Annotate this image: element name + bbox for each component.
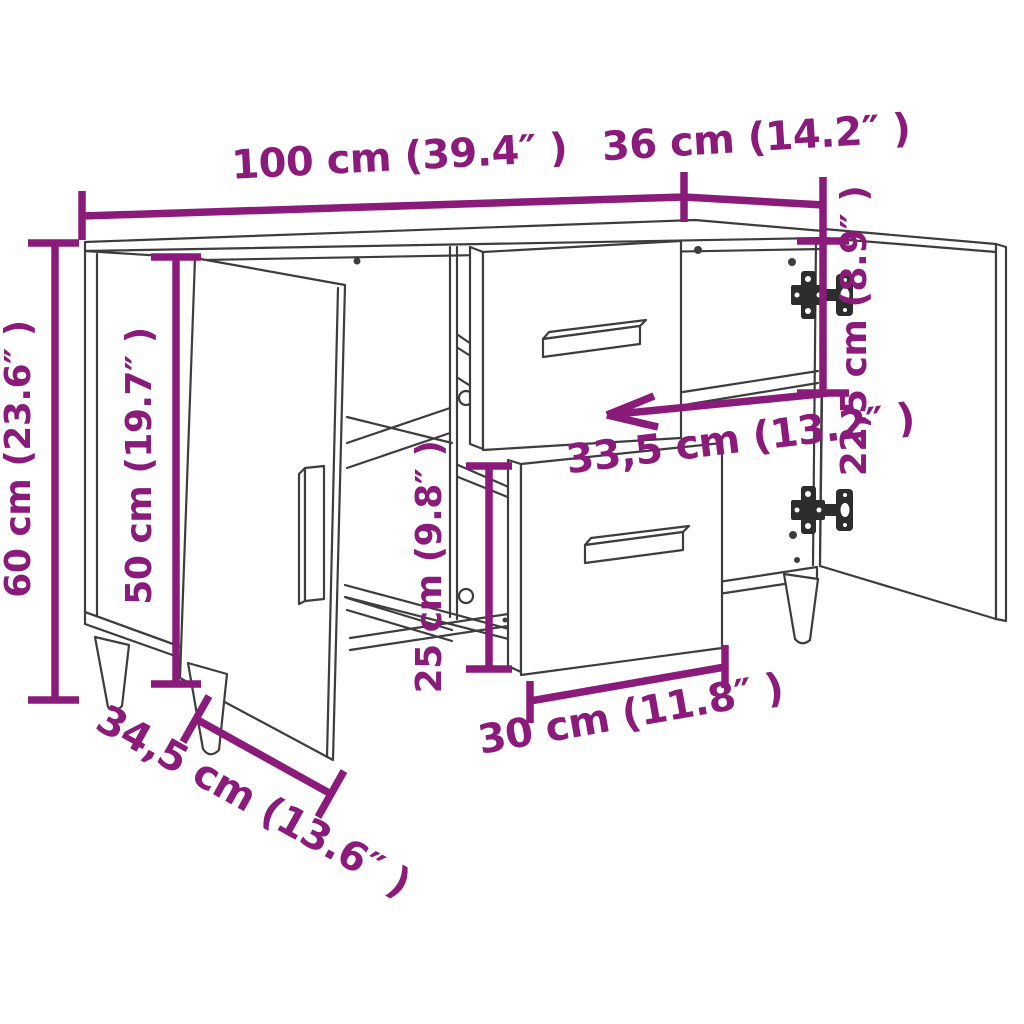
bottom-drawer-side — [508, 460, 521, 672]
dimension-label-drawer-width: 30 cm (11.8″ ) — [475, 665, 787, 764]
back-right-leg — [784, 574, 818, 643]
drawer-roller — [459, 589, 473, 603]
back-panel-screw — [694, 246, 702, 254]
back-panel-screw — [788, 258, 796, 266]
dimension-door-diagonal-width: 34,5 cm (13.6″ ) — [89, 696, 418, 907]
back-left-leg — [188, 663, 227, 754]
left-door-handle — [299, 466, 324, 604]
dimension-label-door-diagonal-width: 34,5 cm (13.6″ ) — [89, 696, 418, 906]
dimension-label-drawer-compartment-height: 25 cm (9.8″ ) — [409, 441, 450, 694]
bottom-drawer — [508, 443, 722, 675]
dimension-label-overall-height: 60 cm (23.6″ ) — [0, 320, 39, 597]
bottom-screw — [794, 557, 800, 563]
dimension-label-overall-width: 100 cm (39.4″ ) — [230, 125, 568, 189]
product-dimension-diagram: 100 cm (39.4″ ) 36 cm (14.2″ ) 22,5 cm (… — [0, 0, 1024, 1024]
right-door-edge-strip — [996, 244, 1006, 621]
top-panel — [85, 220, 823, 251]
dimension-overall-height: 60 cm (23.6″ ) — [0, 243, 79, 700]
top-drawer — [470, 241, 681, 450]
dimension-label-overall-depth: 36 cm (14.2″ ) — [601, 106, 912, 171]
sideboard-diagram-canvas: 100 cm (39.4″ ) 36 cm (14.2″ ) 22,5 cm (… — [0, 0, 1024, 1024]
back-panel-screw — [789, 531, 797, 539]
dimension-annotations: 100 cm (39.4″ ) 36 cm (14.2″ ) 22,5 cm (… — [0, 106, 917, 907]
dimension-label-door-height: 50 cm (19.7″ ) — [119, 327, 160, 604]
shelf-pin-hole — [354, 258, 361, 265]
top-drawer-side — [470, 247, 483, 449]
dimension-overall-depth: 36 cm (14.2″ ) — [601, 106, 912, 171]
runner-screw — [503, 618, 508, 623]
